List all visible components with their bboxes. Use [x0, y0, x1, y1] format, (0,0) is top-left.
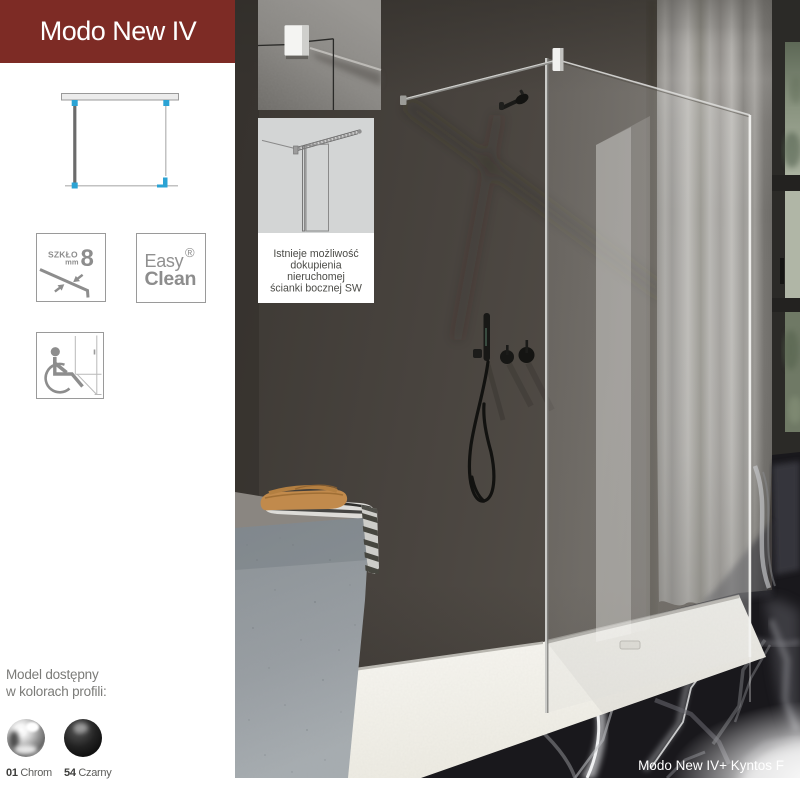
- svg-text:®: ®: [185, 245, 195, 260]
- svg-text:nieruchomej: nieruchomej: [287, 271, 345, 283]
- svg-text:8: 8: [81, 245, 94, 272]
- svg-text:Istnieje możliwość: Istnieje możliwość: [273, 248, 359, 260]
- svg-text:mm: mm: [65, 258, 79, 267]
- svg-text:ścianki bocznej SW: ścianki bocznej SW: [270, 283, 362, 295]
- svg-text:Modo New IV+ Kyntos F: Modo New IV+ Kyntos F: [638, 758, 784, 773]
- svg-text:Clean: Clean: [145, 268, 197, 290]
- svg-text:dokupienia: dokupienia: [290, 260, 341, 272]
